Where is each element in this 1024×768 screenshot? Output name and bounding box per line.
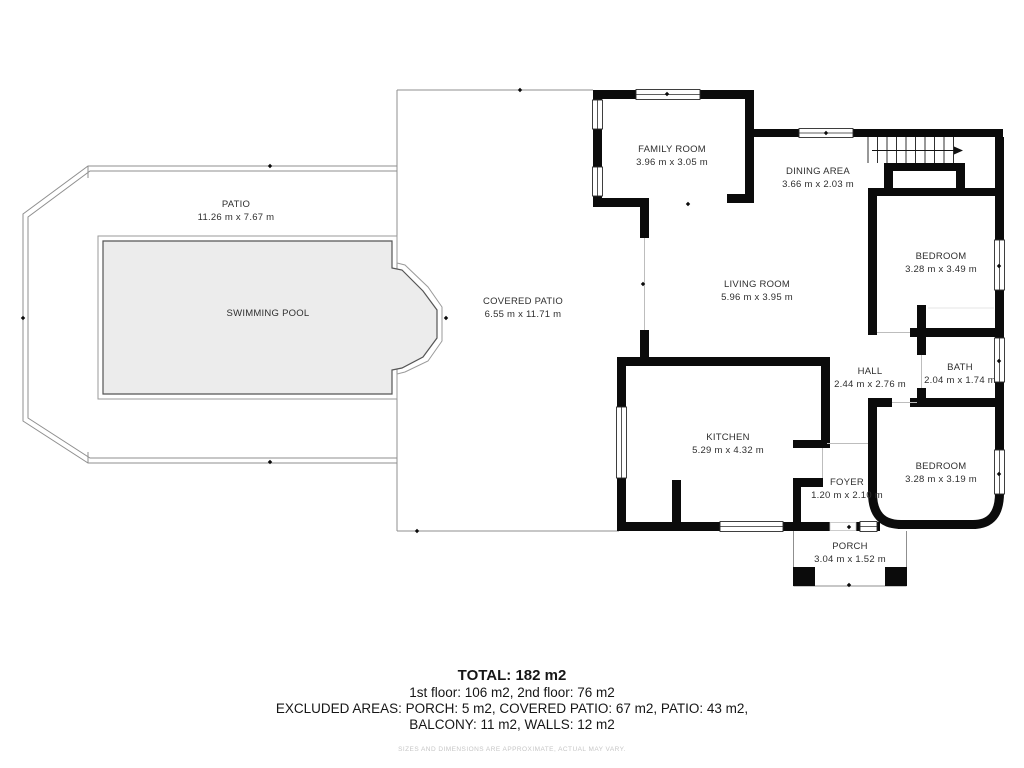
room-label-foyer: FOYER 1.20 m x 2.10 m (811, 477, 883, 502)
floor-plan: PATIO 11.26 m x 7.67 m SWIMMING POOL COV… (0, 0, 1024, 768)
room-name: HALL (834, 366, 906, 379)
room-dims: 2.44 m x 2.76 m (834, 379, 906, 392)
room-name: FOYER (811, 477, 883, 490)
floor-areas: 1st floor: 106 m2, 2nd floor: 76 m2 (0, 685, 1024, 701)
room-dims: 1.20 m x 2.10 m (811, 490, 883, 503)
room-name: FAMILY ROOM (636, 144, 708, 157)
room-dims: 3.66 m x 2.03 m (782, 179, 854, 192)
disclaimer-text: SIZES AND DIMENSIONS ARE APPROXIMATE, AC… (0, 746, 1024, 753)
room-name: COVERED PATIO (483, 296, 563, 309)
total-area: TOTAL: 182 m2 (0, 666, 1024, 685)
room-dims: 3.28 m x 3.19 m (905, 474, 977, 487)
room-name: LIVING ROOM (721, 279, 793, 292)
room-dims: 11.26 m x 7.67 m (198, 212, 275, 225)
room-name: DINING AREA (782, 166, 854, 179)
room-label-bath: BATH 2.04 m x 1.74 m (924, 362, 996, 387)
room-label-bedroom-2: BEDROOM 3.28 m x 3.19 m (905, 461, 977, 486)
room-label-bedroom-1: BEDROOM 3.28 m x 3.49 m (905, 251, 977, 276)
room-dims: 3.96 m x 3.05 m (636, 157, 708, 170)
excluded-areas-line2: BALCONY: 11 m2, WALLS: 12 m2 (0, 717, 1024, 733)
room-name: BEDROOM (905, 461, 977, 474)
room-name: SWIMMING POOL (227, 308, 310, 321)
room-label-kitchen: KITCHEN 5.29 m x 4.32 m (692, 432, 764, 457)
room-dims: 5.96 m x 3.95 m (721, 292, 793, 305)
room-name: KITCHEN (692, 432, 764, 445)
room-label-family-room: FAMILY ROOM 3.96 m x 3.05 m (636, 144, 708, 169)
room-name: PORCH (814, 541, 886, 554)
area-summary: TOTAL: 182 m2 1st floor: 106 m2, 2nd flo… (0, 666, 1024, 733)
excluded-areas-line1: EXCLUDED AREAS: PORCH: 5 m2, COVERED PAT… (0, 701, 1024, 717)
room-label-dining-area: DINING AREA 3.66 m x 2.03 m (782, 166, 854, 191)
room-label-patio: PATIO 11.26 m x 7.67 m (198, 199, 275, 224)
room-dims: 6.55 m x 11.71 m (483, 309, 563, 322)
room-label-covered-patio: COVERED PATIO 6.55 m x 11.71 m (483, 296, 563, 321)
porch-pillar-left (793, 567, 815, 586)
room-name: BEDROOM (905, 251, 977, 264)
room-dims: 2.04 m x 1.74 m (924, 375, 996, 388)
room-dims: 5.29 m x 4.32 m (692, 445, 764, 458)
room-dims: 3.28 m x 3.49 m (905, 264, 977, 277)
room-label-hall: HALL 2.44 m x 2.76 m (834, 366, 906, 391)
room-label-living-room: LIVING ROOM 5.96 m x 3.95 m (721, 279, 793, 304)
porch-pillar-right (885, 567, 907, 586)
room-label-swimming-pool: SWIMMING POOL (227, 308, 310, 321)
room-name: BATH (924, 362, 996, 375)
room-name: PATIO (198, 199, 275, 212)
staircase (868, 137, 963, 163)
room-label-porch: PORCH 3.04 m x 1.52 m (814, 541, 886, 566)
room-dims: 3.04 m x 1.52 m (814, 554, 886, 567)
